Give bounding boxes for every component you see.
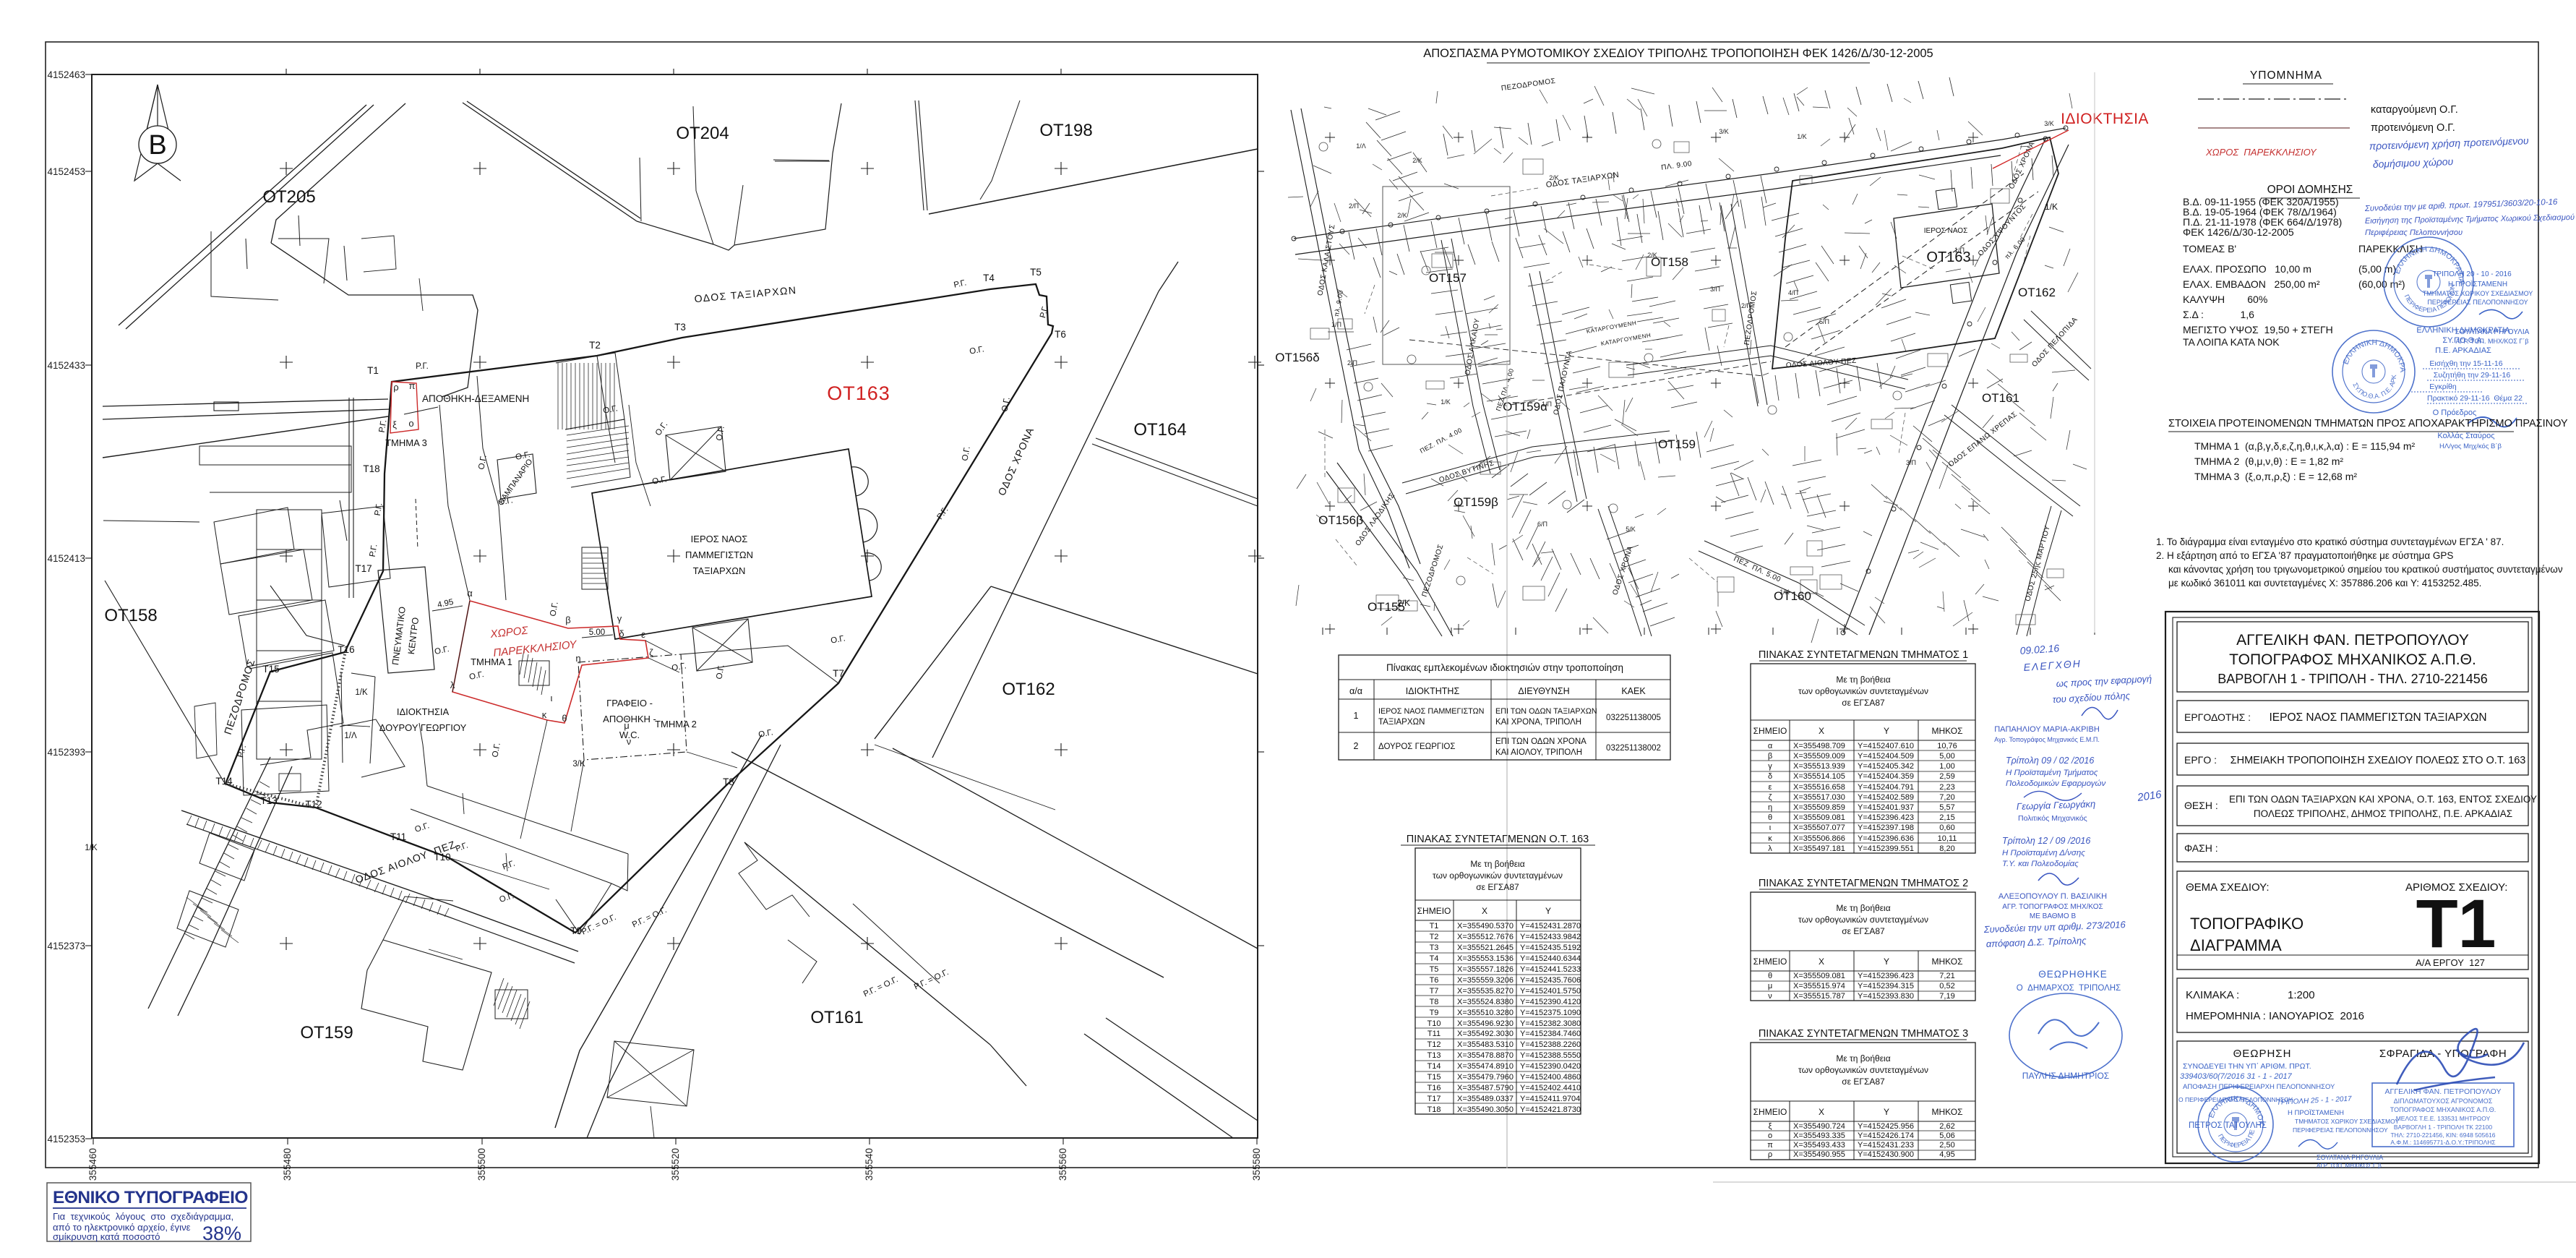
- svg-text:ΟΤ159: ΟΤ159: [300, 1023, 353, 1043]
- svg-text:ΟΤ161: ΟΤ161: [810, 1008, 863, 1027]
- svg-text:ΒΑΡΒΟΓΛΗ 1 - ΤΡΙΠΟΛΗ - ΤΗΛ. 27: ΒΑΡΒΟΓΛΗ 1 - ΤΡΙΠΟΛΗ - ΤΗΛ. 2710-221456: [2217, 672, 2487, 686]
- svg-text:ΣΥΝΟΔΕΥΕΙ ΤΗΝ ΥΠ΄ ΑΡΙΘΜ. ΠΡΩΤ.: ΣΥΝΟΔΕΥΕΙ ΤΗΝ ΥΠ΄ ΑΡΙΘΜ. ΠΡΩΤ.: [2183, 1062, 2311, 1071]
- svg-text:με κωδικό 361011 και συντεταγμ: με κωδικό 361011 και συντεταγμένες X: 35…: [2168, 578, 2481, 589]
- svg-text:4152353: 4152353: [47, 1134, 85, 1144]
- svg-text:Τ2: Τ2: [1430, 933, 1439, 941]
- svg-text:καταργούμενη Ο.Γ.: καταργούμενη Ο.Γ.: [2371, 104, 2458, 116]
- svg-text:5,57: 5,57: [1939, 803, 1954, 812]
- svg-text:προτεινόμενη Ο.Γ.: προτεινόμενη Ο.Γ.: [2371, 122, 2455, 134]
- svg-text:2/Κ: 2/Κ: [1397, 212, 1407, 219]
- svg-text:ΜΗΚΟΣ: ΜΗΚΟΣ: [1931, 1107, 1962, 1117]
- svg-text:Y=4152384.7460: Y=4152384.7460: [1520, 1030, 1581, 1038]
- svg-text:ΠΕΤΡΟΣ ΤΑΤΟΥΛΗΣ: ΠΕΤΡΟΣ ΤΑΤΟΥΛΗΣ: [2189, 1121, 2267, 1130]
- svg-text:Y=4152433.9842: Y=4152433.9842: [1520, 933, 1581, 941]
- svg-text:ΤΟΠΟΓΡΑΦΟΣ ΜΗΧΑΝΙΚΟΣ Α.Π.Θ.: ΤΟΠΟΓΡΑΦΟΣ ΜΗΧΑΝΙΚΟΣ Α.Π.Θ.: [2229, 651, 2476, 668]
- svg-text:X=355507.077: X=355507.077: [1793, 823, 1845, 832]
- svg-text:ΤΜΗΜΑ 1: ΤΜΗΜΑ 1: [471, 656, 512, 667]
- svg-text:σε ΕΓΣΑ87: σε ΕΓΣΑ87: [1476, 882, 1519, 892]
- svg-text:1: 1: [1354, 711, 1359, 721]
- svg-text:ΘΕΩΡΗΣΗ: ΘΕΩΡΗΣΗ: [2233, 1048, 2292, 1060]
- svg-text:4152463: 4152463: [47, 69, 85, 80]
- svg-text:1/Λ: 1/Λ: [1356, 142, 1366, 150]
- svg-text:ΠΑΠΑΗΛΙΟΥ ΜΑΡΙΑ-ΑΚΡΙΒΗ: ΠΑΠΑΗΛΙΟΥ ΜΑΡΙΑ-ΑΚΡΙΒΗ: [1994, 725, 2100, 734]
- svg-text:ΑΠΟΘΗΚΗ-ΔΕΞΑΜΕΝΗ: ΑΠΟΘΗΚΗ-ΔΕΞΑΜΕΝΗ: [422, 393, 529, 404]
- svg-text:Y=4152399.551: Y=4152399.551: [1858, 844, 1914, 853]
- svg-text:2/Π: 2/Π: [1741, 302, 1751, 309]
- svg-text:ΜΗΚΟΣ: ΜΗΚΟΣ: [1931, 726, 1962, 736]
- svg-text:ο: ο: [408, 418, 413, 429]
- svg-text:ΜΕΓΙΣΤΟ ΥΨΟΣ 19,50 + ΣΤΕΓΗ: ΜΕΓΙΣΤΟ ΥΨΟΣ 19,50 + ΣΤΕΓΗ: [2183, 324, 2333, 335]
- svg-text:4152393: 4152393: [47, 747, 85, 758]
- svg-text:Y=4152390.4120: Y=4152390.4120: [1520, 998, 1581, 1006]
- svg-text:Y=4152393.830: Y=4152393.830: [1858, 992, 1914, 1001]
- svg-text:ε: ε: [641, 629, 645, 640]
- svg-text:Αγρ. Τοπογράφος Μηχανικός Ε.Μ.: Αγρ. Τοπογράφος Μηχανικός Ε.Μ.Π.: [1994, 736, 2100, 743]
- svg-text:Y=4152404.359: Y=4152404.359: [1858, 772, 1914, 781]
- svg-text:Y=4152396.636: Y=4152396.636: [1858, 834, 1914, 843]
- svg-text:1/Π: 1/Π: [1542, 401, 1552, 408]
- svg-text:T2: T2: [589, 340, 601, 351]
- svg-text:ΠΕΡΙΦΕΡΕΙΑΣ ΠΕΛΟΠΟΝΝΗΣΟΥ: ΠΕΡΙΦΕΡΕΙΑΣ ΠΕΛΟΠΟΝΝΗΣΟΥ: [2427, 299, 2528, 306]
- svg-text:ΟΤ205: ΟΤ205: [262, 187, 315, 207]
- svg-text:Y: Y: [1884, 957, 1889, 967]
- svg-text:X=355559.3206: X=355559.3206: [1457, 976, 1514, 985]
- svg-text:38%: 38%: [202, 1223, 241, 1244]
- svg-text:ΣΗΜΕΙΟ: ΣΗΜΕΙΟ: [1753, 1107, 1787, 1117]
- svg-text:Τ10: Τ10: [1427, 1019, 1441, 1028]
- svg-text:355500: 355500: [476, 1148, 487, 1181]
- svg-text:2,62: 2,62: [1939, 1122, 1954, 1131]
- svg-text:π: π: [1767, 1141, 1773, 1150]
- svg-text:X: X: [1819, 1107, 1824, 1117]
- svg-text:Y: Y: [1884, 1107, 1889, 1117]
- svg-text:X=355553.1536: X=355553.1536: [1457, 954, 1514, 963]
- svg-text:Τ1: Τ1: [2416, 886, 2496, 962]
- svg-text:Τ12: Τ12: [1427, 1040, 1441, 1049]
- svg-text:X=355490.724: X=355490.724: [1793, 1122, 1845, 1131]
- svg-text:ΑΓΡ. ΤΟΠ. ΜΗΧ/ΚΟΣ Γ΄β: ΑΓΡ. ΤΟΠ. ΜΗΧ/ΚΟΣ Γ΄β: [2317, 1163, 2382, 1169]
- svg-text:ΙΔΙΟΚΤΗΣΙΑ: ΙΔΙΟΚΤΗΣΙΑ: [397, 706, 450, 717]
- svg-text:Τ9: Τ9: [1430, 1009, 1439, 1017]
- svg-text:0,52: 0,52: [1939, 982, 1954, 990]
- svg-text:ΕΛΑΧ. ΕΜΒΑΔΟΝ 250,00 m²: ΕΛΑΧ. ΕΜΒΑΔΟΝ 250,00 m²: [2183, 278, 2320, 290]
- svg-text:ΠΑΥΛΗΣ ΔΗΜΗΤΡΙΟΣ: ΠΑΥΛΗΣ ΔΗΜΗΤΡΙΟΣ: [2022, 1071, 2109, 1081]
- svg-text:Τ13: Τ13: [1427, 1051, 1441, 1060]
- svg-text:Τρίπολη 09 / 02 /2016: Τρίπολη 09 / 02 /2016: [2006, 756, 2094, 766]
- svg-text:Y=4152421.8730: Y=4152421.8730: [1520, 1105, 1581, 1114]
- svg-text:T6: T6: [1055, 329, 1066, 340]
- svg-text:Τ11: Τ11: [1427, 1030, 1441, 1038]
- svg-text:ΑΠΟΦΑΣΗ ΠΕΡΙΦΕΡΕΙΑΡΧΗ ΠΕΛΟΠΟΝΝ: ΑΠΟΦΑΣΗ ΠΕΡΙΦΕΡΕΙΑΡΧΗ ΠΕΛΟΠΟΝΝΗΣΟΥ: [2183, 1083, 2335, 1091]
- svg-text:ΑΓΓΕΛΙΚΗ ΦΑΝ. ΠΕΤΡΟΠΟΥΛΟΥ: ΑΓΓΕΛΙΚΗ ΦΑΝ. ΠΕΤΡΟΠΟΥΛΟΥ: [2236, 632, 2469, 649]
- svg-text:ΧΩΡΟΣ ΠΑΡΕΚΚΛΗΣΙΟΥ: ΧΩΡΟΣ ΠΑΡΕΚΚΛΗΣΙΟΥ: [2205, 147, 2317, 158]
- svg-text:X=355557.1826: X=355557.1826: [1457, 965, 1514, 974]
- svg-text:X=355490.5370: X=355490.5370: [1457, 922, 1514, 930]
- svg-text:ΙΕΡΟΣ ΝΑΟΣ ΠΑΜΜΕΓΙΣΤΩΝ ΤΑΞΙΑΡΧ: ΙΕΡΟΣ ΝΑΟΣ ΠΑΜΜΕΓΙΣΤΩΝ ΤΑΞΙΑΡΧΩΝ: [2269, 711, 2486, 724]
- svg-text:2/Κ: 2/Κ: [1397, 598, 1410, 608]
- svg-text:ΗΜΕΡΟΜΗΝΙΑ : ΙΑΝΟΥΑΡΙΟΣ 2016: ΗΜΕΡΟΜΗΝΙΑ : ΙΑΝΟΥΑΡΙΟΣ 2016: [2186, 1010, 2364, 1022]
- svg-text:X=355515.787: X=355515.787: [1793, 992, 1845, 1001]
- svg-text:2,23: 2,23: [1939, 783, 1954, 792]
- svg-text:ΤΟΜΕΑΣ Β': ΤΟΜΕΑΣ Β': [2183, 243, 2236, 254]
- svg-text:ΠΕΡΙΦΕΡΕΙΑΣ ΠΕΛΟΠΟΝΝΗΣΟΥ: ΠΕΡΙΦΕΡΕΙΑΣ ΠΕΛΟΠΟΝΝΗΣΟΥ: [2293, 1126, 2388, 1134]
- svg-text:Y=4152425.956: Y=4152425.956: [1858, 1122, 1914, 1131]
- svg-text:Y=4152396.423: Y=4152396.423: [1858, 972, 1914, 980]
- svg-text:2,50: 2,50: [1939, 1141, 1954, 1150]
- svg-text:ΕΠΙ ΤΩΝ ΟΔΩΝ ΤΑΞΙΑΡΧΩΝ: ΕΠΙ ΤΩΝ ΟΔΩΝ ΤΑΞΙΑΡΧΩΝ: [1495, 707, 1597, 716]
- svg-text:ι: ι: [551, 693, 553, 703]
- svg-text:Τρίπολη 12 / 09 /2016: Τρίπολη 12 / 09 /2016: [2002, 836, 2090, 846]
- svg-text:Y=4152435.7606: Y=4152435.7606: [1520, 976, 1581, 985]
- svg-text:1,00: 1,00: [1939, 762, 1954, 771]
- svg-text:ΚΑΕΚ: ΚΑΕΚ: [1621, 686, 1646, 696]
- svg-text:Y=4152400.4860: Y=4152400.4860: [1520, 1073, 1581, 1082]
- svg-text:6/Π: 6/Π: [1537, 521, 1547, 528]
- svg-text:Y=4152394.315: Y=4152394.315: [1858, 982, 1914, 990]
- svg-text:Πολιτικός Μηχανικός: Πολιτικός Μηχανικός: [2018, 814, 2087, 823]
- svg-text:X=355512.7676: X=355512.7676: [1457, 933, 1514, 941]
- svg-text:θ: θ: [1768, 972, 1772, 980]
- svg-text:X=355521.2645: X=355521.2645: [1457, 943, 1514, 952]
- svg-text:ΤΟΠΟΓΡΑΦΟΣ ΜΗΧΑΝΙΚΟΣ Α.Π.Θ.: ΤΟΠΟΓΡΑΦΟΣ ΜΗΧΑΝΙΚΟΣ Α.Π.Θ.: [2390, 1106, 2496, 1113]
- svg-text:ζ: ζ: [649, 647, 653, 658]
- svg-text:2,59: 2,59: [1939, 772, 1954, 781]
- svg-text:3/Κ: 3/Κ: [1719, 128, 1729, 135]
- svg-text:θ: θ: [1768, 813, 1772, 822]
- svg-text:T15: T15: [262, 664, 279, 675]
- svg-text:ΘΕΩΡΗΘΗΚΕ: ΘΕΩΡΗΘΗΚΕ: [2038, 969, 2108, 980]
- svg-text:X=355490.3050: X=355490.3050: [1457, 1105, 1514, 1114]
- svg-text:10,76: 10,76: [1937, 742, 1957, 750]
- svg-text:Y=4152390.0420: Y=4152390.0420: [1520, 1062, 1581, 1071]
- svg-text:ΣΗΜΕΙΟ: ΣΗΜΕΙΟ: [1753, 726, 1787, 736]
- svg-text:ΙΕΡΟΣ ΝΑΟΣ ΠΑΜΜΕΓΙΣΤΩΝ: ΙΕΡΟΣ ΝΑΟΣ ΠΑΜΜΕΓΙΣΤΩΝ: [1378, 707, 1484, 716]
- svg-text:Τ14: Τ14: [1427, 1062, 1441, 1071]
- svg-text:3/Π: 3/Π: [1906, 459, 1916, 466]
- svg-text:Η ΠΡΟΪΣΤΑΜΕΝΗ: Η ΠΡΟΪΣΤΑΜΕΝΗ: [2448, 280, 2507, 288]
- svg-text:355580: 355580: [1251, 1148, 1262, 1181]
- svg-text:σε ΕΓΣΑ87: σε ΕΓΣΑ87: [1842, 698, 1885, 708]
- svg-text:T18: T18: [363, 463, 379, 474]
- svg-text:ΟΤ163: ΟΤ163: [827, 382, 890, 404]
- svg-text:ΕΛΑΧ. ΠΡΟΣΩΠΟ 10,00 m: ΕΛΑΧ. ΠΡΟΣΩΠΟ 10,00 m: [2183, 263, 2311, 275]
- svg-text:ΟΤ156δ: ΟΤ156δ: [1275, 351, 1319, 364]
- svg-text:1/Π: 1/Π: [1954, 247, 1965, 254]
- svg-text:ΠΙΝΑΚΑΣ ΣΥΝΤΕΤΑΓΜΕΝΩΝ Ο.Τ. 163: ΠΙΝΑΚΑΣ ΣΥΝΤΕΤΑΓΜΕΝΩΝ Ο.Τ. 163: [1407, 834, 1589, 845]
- svg-text:ΕΡΓΟ :: ΕΡΓΟ :: [2184, 754, 2217, 766]
- svg-text:ΣΗΜΕΙΟ: ΣΗΜΕΙΟ: [1417, 906, 1451, 916]
- svg-text:ΤΜΗΜΑ 3 (ξ,ο,π,ρ,ξ) : Ε = 12,: ΤΜΗΜΑ 3 (ξ,ο,π,ρ,ξ) : Ε = 12,68 m²: [2194, 471, 2357, 482]
- svg-text:1/Λ: 1/Λ: [344, 732, 357, 740]
- svg-text:0,60: 0,60: [1939, 823, 1954, 832]
- svg-text:ΗΛ/γος Μηχ/κός Β΄β: ΗΛ/γος Μηχ/κός Β΄β: [2439, 442, 2502, 450]
- svg-text:X=355487.5790: X=355487.5790: [1457, 1084, 1514, 1092]
- svg-text:μ: μ: [1768, 982, 1772, 990]
- svg-text:β: β: [565, 615, 570, 625]
- svg-text:των ορθογωνικών συντεταγμένων: των ορθογωνικών συντεταγμένων: [1798, 915, 1928, 925]
- svg-text:Y=4152440.6344: Y=4152440.6344: [1520, 954, 1581, 963]
- svg-text:Ο ΔΗΜΑΡΧΟΣ ΤΡΙΠΟΛΗΣ: Ο ΔΗΜΑΡΧΟΣ ΤΡΙΠΟΛΗΣ: [2017, 984, 2121, 993]
- svg-text:X=355478.8870: X=355478.8870: [1457, 1051, 1514, 1060]
- svg-text:X=355516.658: X=355516.658: [1793, 783, 1845, 792]
- svg-text:Η ΠΡΟΪΣΤΑΜΕΝΗ: Η ΠΡΟΪΣΤΑΜΕΝΗ: [2288, 1109, 2344, 1117]
- svg-text:4,95: 4,95: [1939, 1150, 1954, 1159]
- svg-text:Y=4152396.423: Y=4152396.423: [1858, 813, 1914, 822]
- svg-text:ΣΟΥΛΤΑΝΑ ΡΗΓΟΥΛΙΑ: ΣΟΥΛΤΑΝΑ ΡΗΓΟΥΛΙΑ: [2317, 1154, 2383, 1161]
- svg-text:Πίνακας εμπλεκομένων ιδιοκτησι: Πίνακας εμπλεκομένων ιδιοκτησιών στην τρ…: [1386, 662, 1623, 673]
- svg-text:των ορθογωνικών συντεταγμένων: των ορθογωνικών συντεταγμένων: [1433, 870, 1563, 881]
- svg-text:ΔΙΑΓΡΑΜΜΑ: ΔΙΑΓΡΑΜΜΑ: [2190, 936, 2282, 954]
- svg-text:Τ1: Τ1: [1430, 922, 1439, 930]
- svg-text:ΘΕΣΗ :: ΘΕΣΗ :: [2184, 800, 2218, 811]
- svg-text:ΔΟΥΡΟΣ ΓΕΩΡΓΙΟΣ: ΔΟΥΡΟΣ ΓΕΩΡΓΙΟΣ: [1378, 743, 1455, 751]
- svg-text:2/Π: 2/Π: [1349, 202, 1359, 210]
- svg-text:ΙΔΙΟΚΤΗΤΗΣ: ΙΔΙΟΚΤΗΤΗΣ: [1406, 686, 1460, 696]
- svg-text:T3: T3: [674, 322, 686, 333]
- svg-text:ΚΛΙΜΑΚΑ :: ΚΛΙΜΑΚΑ :: [2186, 989, 2239, 1001]
- svg-text:ΤΜΗΜΑ 2 (θ,μ,ν,θ) : Ε = 1,82: ΤΜΗΜΑ 2 (θ,μ,ν,θ) : Ε = 1,82 m²: [2194, 455, 2343, 467]
- svg-text:ΟΤ156β: ΟΤ156β: [1318, 513, 1363, 527]
- svg-text:X=355490.955: X=355490.955: [1793, 1150, 1845, 1159]
- svg-text:Εγκρίθη: Εγκρίθη: [2429, 382, 2457, 391]
- svg-text:ΤΗΛ: 2710-221456, ΚΙΝ: 6948 50: ΤΗΛ: 2710-221456, ΚΙΝ: 6948 505616: [2390, 1131, 2495, 1139]
- svg-text:8,20: 8,20: [1939, 844, 1954, 853]
- svg-text:1/Κ: 1/Κ: [2045, 202, 2058, 212]
- svg-text:T12: T12: [305, 799, 322, 810]
- svg-text:X=355535.8270: X=355535.8270: [1457, 987, 1514, 996]
- svg-text:ξ: ξ: [1769, 1122, 1772, 1131]
- svg-text:X=355517.030: X=355517.030: [1793, 793, 1845, 802]
- svg-text:1/Κ: 1/Κ: [1779, 589, 1790, 596]
- svg-text:1/Κ: 1/Κ: [1441, 398, 1451, 406]
- svg-text:ρ: ρ: [393, 382, 398, 393]
- svg-text:Y=4152435.5192: Y=4152435.5192: [1520, 943, 1581, 952]
- svg-text:ΤΜΗΜΑΤΟΣ ΧΩΡΙΚΟΥ ΣΧΕΔΙΑΣΜΟΥ: ΤΜΗΜΑΤΟΣ ΧΩΡΙΚΟΥ ΣΧΕΔΙΑΣΜΟΥ: [2295, 1118, 2399, 1125]
- svg-text:ΚΑΛΥΨΗ 60%: ΚΑΛΥΨΗ 60%: [2183, 294, 2267, 305]
- svg-text:1/Κ: 1/Κ: [355, 688, 368, 697]
- svg-text:ΕΡΓΟΔΟΤΗΣ :: ΕΡΓΟΔΟΤΗΣ :: [2184, 711, 2251, 723]
- svg-text:(60,00 m²): (60,00 m²): [2358, 278, 2405, 290]
- svg-text:T4: T4: [983, 273, 995, 283]
- svg-text:T17: T17: [355, 563, 372, 574]
- svg-text:Με τη βοήθεια: Με τη βοήθεια: [1470, 859, 1524, 869]
- svg-text:Y=4152405.342: Y=4152405.342: [1858, 762, 1914, 771]
- svg-text:Συζητήθη την 29-11-16: Συζητήθη την 29-11-16: [2434, 371, 2511, 380]
- svg-text:Y=4152404.791: Y=4152404.791: [1858, 783, 1914, 792]
- svg-text:T16: T16: [338, 644, 354, 655]
- svg-text:Τ16: Τ16: [1427, 1084, 1441, 1092]
- svg-text:X: X: [1819, 957, 1824, 967]
- svg-text:5/Π: 5/Π: [1819, 318, 1829, 325]
- svg-text:T10: T10: [434, 852, 450, 863]
- svg-text:δ: δ: [1768, 772, 1772, 781]
- svg-text:T1: T1: [367, 365, 379, 376]
- svg-text:ΟΤ157: ΟΤ157: [1429, 271, 1467, 285]
- svg-text:X=355510.3280: X=355510.3280: [1457, 1009, 1514, 1017]
- svg-text:σε ΕΓΣΑ87: σε ΕΓΣΑ87: [1842, 1077, 1885, 1087]
- svg-text:και κάνοντας χρήση του τριγωνο: και κάνοντας χρήση του τριγωνομετρικού σ…: [2168, 564, 2563, 575]
- svg-text:Πρακτικό 29-11-16 Θέμα 22: Πρακτικό 29-11-16 Θέμα 22: [2427, 394, 2523, 403]
- svg-text:ΔΙΠΛΩΜΑΤΟΥΧΟΣ ΑΓΡΟΝΟΜΟΣ: ΔΙΠΛΩΜΑΤΟΥΧΟΣ ΑΓΡΟΝΟΜΟΣ: [2394, 1097, 2493, 1105]
- svg-text:Y=4152404.509: Y=4152404.509: [1858, 752, 1914, 761]
- svg-text:Y=4152441.5233: Y=4152441.5233: [1520, 965, 1581, 974]
- svg-text:ΑΠΟΣΠΑΣΜΑ ΡΥΜΟΤΟΜΙΚΟΥ ΣΧΕΔΙΟΥ: ΑΠΟΣΠΑΣΜΑ ΡΥΜΟΤΟΜΙΚΟΥ ΣΧΕΔΙΟΥ ΤΡΙΠΟΛΗΣ Τ…: [1423, 47, 1933, 60]
- svg-text:ΑΓΓΕΛΙΚΗ ΦΑΝ. ΠΕΤΡΟΠΟΥΛΟΥ: ΑΓΓΕΛΙΚΗ ΦΑΝ. ΠΕΤΡΟΠΟΥΛΟΥ: [2385, 1087, 2502, 1096]
- svg-text:Τ4: Τ4: [1430, 954, 1439, 963]
- svg-text:355540: 355540: [864, 1148, 875, 1181]
- svg-text:μ: μ: [624, 720, 630, 731]
- svg-text:γ: γ: [1768, 762, 1772, 771]
- svg-text:ΟΤ164: ΟΤ164: [1133, 420, 1186, 440]
- svg-text:Y=4152401.5750: Y=4152401.5750: [1520, 987, 1581, 996]
- svg-text:ΔΙΕΥΘΥΝΣΗ: ΔΙΕΥΘΥΝΣΗ: [1518, 686, 1569, 696]
- svg-text:X=355474.8910: X=355474.8910: [1457, 1062, 1514, 1071]
- svg-text:ΚΑΙ ΑΙΟΛΟΥ, ΤΡΙΠΟΛΗ: ΚΑΙ ΑΙΟΛΟΥ, ΤΡΙΠΟΛΗ: [1495, 748, 1582, 757]
- svg-text:ΤΜΗΜΑΤΟΣ ΧΩΡΙΚΟΥ ΣΧΕΔΙΑΣΜΟΥ: ΤΜΗΜΑΤΟΣ ΧΩΡΙΚΟΥ ΣΧΕΔΙΑΣΜΟΥ: [2423, 290, 2533, 297]
- svg-text:Πολεοδομικών Εφαρμογών: Πολεοδομικών Εφαρμογών: [2006, 779, 2106, 788]
- svg-text:5,06: 5,06: [1939, 1131, 1954, 1140]
- svg-text:X=355524.8380: X=355524.8380: [1457, 998, 1514, 1006]
- svg-text:ΟΡΟΙ ΔΟΜΗΣΗΣ: ΟΡΟΙ ΔΟΜΗΣΗΣ: [2267, 184, 2353, 196]
- svg-text:ΣΥ.ΠΟ.Θ.Α.: ΣΥ.ΠΟ.Θ.Α.: [2442, 336, 2483, 345]
- svg-text:355520: 355520: [670, 1148, 681, 1181]
- svg-text:ΕΠΙ ΤΩΝ ΟΔΩΝ ΧΡΟΝΑ: ΕΠΙ ΤΩΝ ΟΔΩΝ ΧΡΟΝΑ: [1495, 737, 1587, 746]
- svg-text:1/Κ: 1/Κ: [85, 844, 98, 852]
- svg-text:ΟΤ161: ΟΤ161: [1982, 391, 2019, 405]
- svg-text:B: B: [148, 130, 166, 161]
- svg-text:δ: δ: [619, 628, 624, 639]
- svg-text:λ: λ: [1768, 844, 1772, 853]
- svg-text:ν: ν: [627, 736, 632, 747]
- svg-text:Π.Ε. ΑΡΚΑΔΙΑΣ: Π.Ε. ΑΡΚΑΔΙΑΣ: [2435, 346, 2491, 355]
- svg-text:ρ: ρ: [1768, 1150, 1772, 1159]
- svg-text:ΤΑΞΙΑΡΧΩΝ: ΤΑΞΙΑΡΧΩΝ: [1378, 718, 1425, 727]
- svg-text:032251138002: 032251138002: [1606, 744, 1661, 753]
- svg-text:Τ6: Τ6: [1430, 976, 1439, 985]
- svg-text:Τ15: Τ15: [1427, 1073, 1441, 1082]
- svg-text:ΟΤ162: ΟΤ162: [1002, 680, 1055, 699]
- svg-text:ε: ε: [1769, 783, 1772, 792]
- svg-text:Y=4152375.1090: Y=4152375.1090: [1520, 1009, 1581, 1017]
- svg-text:ΑΓΡ. ΤΟΠΟΓΡΑΦΟΣ ΜΗΧ/ΚΟΣ: ΑΓΡ. ΤΟΠΟΓΡΑΦΟΣ ΜΗΧ/ΚΟΣ: [2002, 903, 2103, 911]
- svg-text:ΦΕΚ 1426/Δ/30-12-2005: ΦΕΚ 1426/Δ/30-12-2005: [2183, 226, 2294, 238]
- svg-text:2/Κ: 2/Κ: [1549, 174, 1559, 181]
- svg-text:Κολλάς Σταύρος: Κολλάς Σταύρος: [2437, 432, 2494, 440]
- svg-text:ΟΤ198: ΟΤ198: [1039, 121, 1092, 140]
- svg-text:Y=4152388.2260: Y=4152388.2260: [1520, 1040, 1581, 1049]
- svg-text:κ: κ: [1768, 834, 1772, 843]
- svg-text:339403/60(7/2016 31 - 1 - 2017: 339403/60(7/2016 31 - 1 - 2017: [2180, 1072, 2293, 1081]
- svg-text:7,20: 7,20: [1939, 793, 1954, 802]
- svg-text:Y=4152382.3080: Y=4152382.3080: [1520, 1019, 1581, 1028]
- svg-text:Ρ.Γ.: Ρ.Γ.: [416, 362, 429, 371]
- svg-text:1/Κ: 1/Κ: [1797, 133, 1807, 140]
- svg-text:X=355509.081: X=355509.081: [1793, 972, 1845, 980]
- svg-text:Y=4152397.198: Y=4152397.198: [1858, 823, 1914, 832]
- svg-text:5,00: 5,00: [1939, 752, 1954, 761]
- svg-text:X=355509.081: X=355509.081: [1793, 813, 1845, 822]
- svg-text:Με τη βοήθεια: Με τη βοήθεια: [1836, 675, 1890, 685]
- svg-text:355480: 355480: [282, 1148, 293, 1181]
- svg-text:η: η: [575, 653, 580, 664]
- svg-text:Y=4152411.9704: Y=4152411.9704: [1520, 1095, 1580, 1103]
- svg-text:π: π: [409, 380, 416, 391]
- svg-text:3/Π: 3/Π: [1710, 286, 1720, 293]
- svg-text:ΣΗΜΕΙΑΚΗ ΤΡΟΠΟΠΟΙΗΣΗ ΣΧΕΔΙΟΥ Π: ΣΗΜΕΙΑΚΗ ΤΡΟΠΟΠΟΙΗΣΗ ΣΧΕΔΙΟΥ ΠΟΛΕΩΣ ΣΤΟ …: [2231, 755, 2526, 766]
- svg-text:Ο Πρόεδρος: Ο Πρόεδρος: [2433, 408, 2477, 417]
- svg-text:X=355493.335: X=355493.335: [1793, 1131, 1845, 1140]
- svg-text:ΟΤ159: ΟΤ159: [1658, 437, 1696, 451]
- svg-text:1/Π: 1/Π: [1331, 321, 1341, 328]
- svg-text:ΤΜΗΜΑ 1 (α,β,γ,δ,ε,ζ,η,θ,ι,κ,: ΤΜΗΜΑ 1 (α,β,γ,δ,ε,ζ,η,θ,ι,κ,λ,α) : Ε = …: [2194, 440, 2416, 452]
- svg-text:α: α: [1768, 742, 1773, 750]
- svg-text:Για τεχνικούς λόγους στο σ: Για τεχνικούς λόγους στο σχεδιάγραμμα,: [53, 1211, 233, 1222]
- svg-text:Τ8: Τ8: [1430, 998, 1439, 1006]
- svg-text:Y=4152388.5550: Y=4152388.5550: [1520, 1051, 1581, 1060]
- svg-text:ΔΟΥΡΟΥ ΓΕΩΡΓΙΟΥ: ΔΟΥΡΟΥ ΓΕΩΡΓΙΟΥ: [379, 722, 467, 733]
- svg-text:4152373: 4152373: [47, 941, 85, 951]
- svg-text:032251138005: 032251138005: [1606, 714, 1661, 722]
- svg-text:2/Κ: 2/Κ: [1412, 157, 1422, 164]
- svg-text:ΙΔΙΟΚΤΗΣΙΑ: ΙΔΙΟΚΤΗΣΙΑ: [2061, 111, 2149, 127]
- svg-text:ΦΑΣΗ :: ΦΑΣΗ :: [2184, 842, 2218, 854]
- svg-text:Y=4152402.589: Y=4152402.589: [1858, 793, 1914, 802]
- svg-text:ΚΑΙ ΧΡΟΝΑ, ΤΡΙΠΟΛΗ: ΚΑΙ ΧΡΟΝΑ, ΤΡΙΠΟΛΗ: [1495, 718, 1581, 727]
- svg-text:355460: 355460: [87, 1148, 98, 1181]
- svg-text:X=355489.0337: X=355489.0337: [1457, 1095, 1514, 1103]
- svg-text:ΑΛΕΞΟΠΟΥΛΟΥ Π. ΒΑΣΙΛΙΚΗ: ΑΛΕΞΟΠΟΥΛΟΥ Π. ΒΑΣΙΛΙΚΗ: [1998, 892, 2107, 901]
- svg-text:2. Η εξάρτηση από το ΕΓΣΑ '87: 2. Η εξάρτηση από το ΕΓΣΑ '87 πραγματοπο…: [2156, 550, 2453, 561]
- svg-text:ΤΜΗΜΑ 2: ΤΜΗΜΑ 2: [655, 719, 697, 729]
- svg-text:Y: Y: [1884, 726, 1889, 736]
- svg-text:ΟΤ158: ΟΤ158: [104, 606, 157, 625]
- svg-text:ΤΑΞΙΑΡΧΩΝ: ΤΑΞΙΑΡΧΩΝ: [693, 565, 746, 576]
- svg-text:ΠΙΝΑΚΑΣ ΣΥΝΤΕΤΑΓΜΕΝΩΝ ΤΜΗΜΑΤΟΣ: ΠΙΝΑΚΑΣ ΣΥΝΤΕΤΑΓΜΕΝΩΝ ΤΜΗΜΑΤΟΣ 2: [1759, 878, 1968, 889]
- svg-text:ΟΤ204: ΟΤ204: [676, 124, 729, 143]
- svg-text:ΟΤ162: ΟΤ162: [2018, 286, 2056, 299]
- svg-text:ν: ν: [1768, 992, 1772, 1001]
- svg-text:4152413: 4152413: [47, 553, 85, 564]
- svg-text:β: β: [1768, 752, 1772, 761]
- svg-text:Τ5: Τ5: [1430, 965, 1439, 974]
- svg-text:X=355493.433: X=355493.433: [1793, 1141, 1845, 1150]
- svg-text:4152433: 4152433: [47, 360, 85, 371]
- svg-text:ΤΟΠΟΓΡΑΦΙΚΟ: ΤΟΠΟΓΡΑΦΙΚΟ: [2190, 915, 2304, 933]
- svg-text:των ορθογωνικών συντεταγμένων: των ορθογωνικών συντεταγμένων: [1798, 686, 1928, 696]
- svg-text:4/Π: 4/Π: [1788, 289, 1798, 296]
- svg-text:X=355483.5310: X=355483.5310: [1457, 1040, 1514, 1049]
- svg-text:10,11: 10,11: [1938, 834, 1957, 843]
- svg-text:X=355513.939: X=355513.939: [1793, 762, 1845, 771]
- svg-text:2/Π: 2/Π: [1347, 359, 1357, 367]
- svg-text:Α/Α ΕΡΓΟΥ 127: Α/Α ΕΡΓΟΥ 127: [2416, 957, 2485, 968]
- svg-text:Με τη βοήθεια: Με τη βοήθεια: [1836, 903, 1890, 913]
- svg-text:ξ: ξ: [392, 419, 397, 430]
- svg-text:X=355479.7960: X=355479.7960: [1457, 1073, 1514, 1082]
- svg-text:T5: T5: [1030, 267, 1042, 278]
- svg-text:ΜΕ ΒΑΘΜΟ Β: ΜΕ ΒΑΘΜΟ Β: [2030, 912, 2077, 920]
- svg-text:1:200: 1:200: [2288, 989, 2315, 1001]
- svg-text:X=355497.181: X=355497.181: [1793, 844, 1845, 853]
- svg-text:X=355509.009: X=355509.009: [1793, 752, 1845, 761]
- svg-text:ΠΟΛΕΩΣ ΤΡΙΠΟΛΗΣ, ΔΗΜΟΣ ΤΡΙΠΟΛΗ: ΠΟΛΕΩΣ ΤΡΙΠΟΛΗΣ, ΔΗΜΟΣ ΤΡΙΠΟΛΗΣ, Π.Ε. ΑΡ…: [2254, 808, 2512, 819]
- svg-text:T11: T11: [390, 831, 406, 842]
- svg-text:T14: T14: [215, 776, 233, 787]
- svg-text:Τ3: Τ3: [1430, 943, 1439, 952]
- svg-text:5/Κ: 5/Κ: [1626, 526, 1636, 533]
- svg-text:ΠΙΝΑΚΑΣ ΣΥΝΤΕΤΑΓΜΕΝΩΝ ΤΜΗΜΑΤΟΣ: ΠΙΝΑΚΑΣ ΣΥΝΤΕΤΑΓΜΕΝΩΝ ΤΜΗΜΑΤΟΣ 1: [1759, 649, 1968, 661]
- svg-text:ΥΠΟΜΝΗΜΑ: ΥΠΟΜΝΗΜΑ: [2250, 69, 2322, 82]
